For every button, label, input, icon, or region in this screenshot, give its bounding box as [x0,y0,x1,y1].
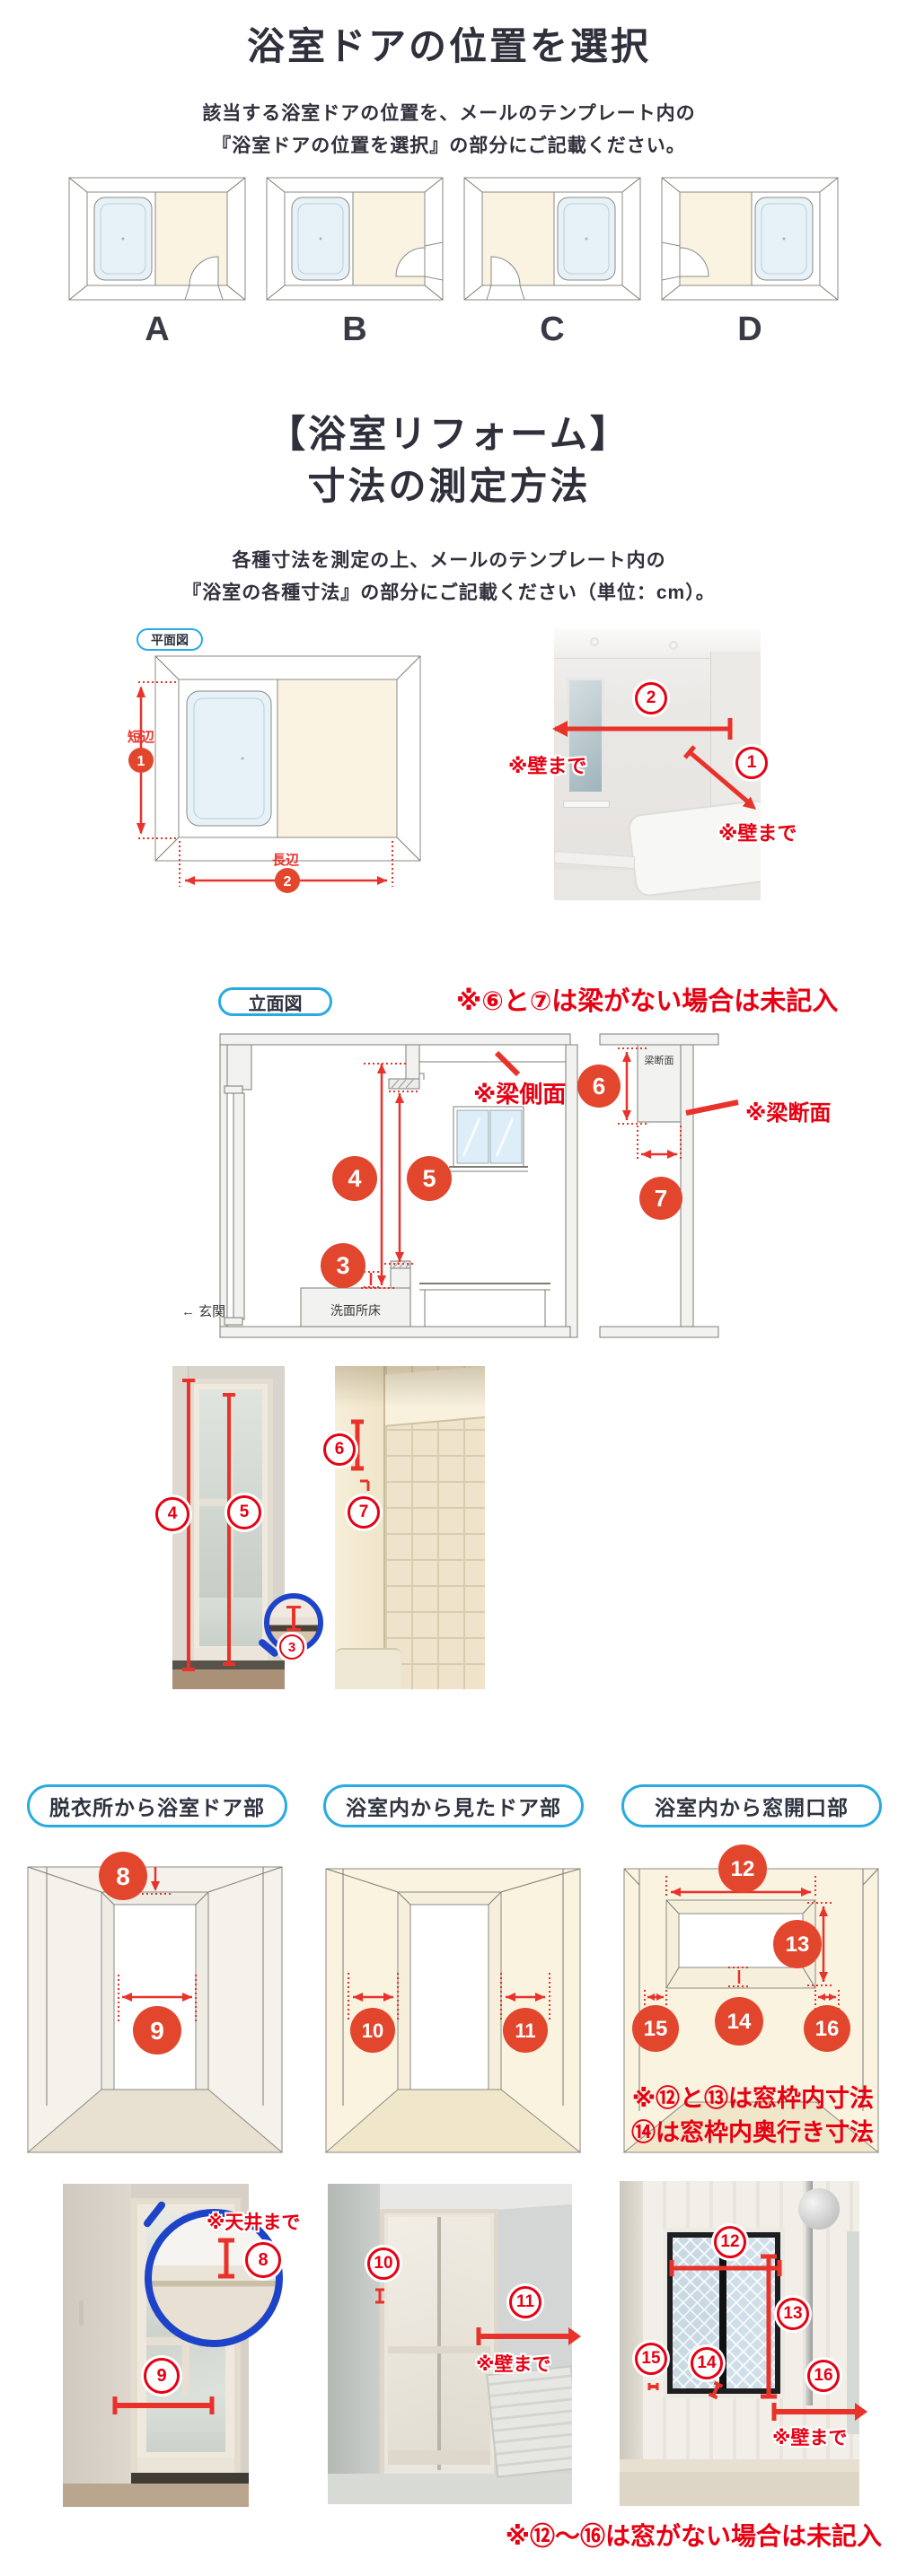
dimension-5: 5 [384,1091,452,1264]
bathtub [94,197,152,280]
photo-marker-9: 9 [144,2358,180,2394]
beam-section-note: ※梁断面 [745,1100,831,1126]
dimension-mark-10 [373,2287,389,2305]
dimension-mark-15 [647,2380,661,2393]
wall-note-2: ※壁まで [718,818,797,846]
bathtub-cover [486,2365,572,2477]
beam-side-label: ※梁側面 [473,1081,566,1108]
marker-3: 3 [336,1252,349,1279]
marker-14: 14 [727,2010,752,2034]
marker-16: 16 [815,2017,840,2041]
step-dimension [292,1606,295,1631]
ceiling-light [669,641,678,650]
step-dimension-cap [286,1606,301,1608]
short-side-label: 短辺 [128,729,155,745]
threshold [131,2473,249,2484]
photo-marker-10: 10 [367,2247,400,2280]
photo-marker-14-number: 14 [697,2353,716,2373]
marker-5: 5 [422,1165,436,1192]
no-window-note: ※⑫〜⑯は窓がない場合は未記入 [506,2517,882,2553]
page-title: 浴室ドアの位置を選択 [0,16,898,71]
photo-marker-3: 3 [279,1634,304,1660]
photo-marker-12: 12 [714,2226,746,2258]
section2-subtitle-line2: 『浴室の各種寸法』の部分にご記載ください（単位：cm）。 [0,578,898,605]
bathtub [292,197,349,280]
option-d-label: D [660,311,840,349]
window-dimension-note-2: ⑭は窓枠内奥行き寸法 [631,2113,874,2148]
door-hinge-line [437,2217,441,2470]
photo-marker-15-number: 15 [641,2349,660,2369]
ceiling-shadow [335,1366,485,1407]
photo-marker-4-number: 4 [168,1504,178,1524]
photo-marker-8-number: 8 [258,2250,268,2271]
dimension-3: 3 [321,1243,379,1288]
beam-section-small-label: 梁断面 [645,1054,674,1066]
floorplan-badge: 平面図 [136,628,203,651]
photo-marker-9-number: 9 [156,2366,166,2387]
ceiling-note: ※天井まで [207,2208,300,2235]
floor [63,2484,249,2507]
plan-c-diagram [462,176,642,302]
subtitle-line1: 該当する浴室ドアの位置を、メールのテンプレート内の [0,99,898,126]
tub-edge [620,2459,859,2472]
inside-door-diagram: 10 11 [325,1867,581,2154]
marker-10: 10 [362,2020,383,2042]
bathtub [558,197,615,280]
left-wall [328,2184,380,2504]
shelf [563,801,610,808]
corner-shadow [620,2181,643,2506]
door-position-option-b: B [265,176,445,349]
elevation-figure: 洗面所床 ← 玄関 ※梁側面 4 5 3 [180,1023,862,1346]
marker-6: 6 [593,1073,605,1100]
dimension-line-13 [759,2251,779,2402]
wall-note-1: ※壁まで [508,750,586,779]
counter [554,851,635,869]
dimension-line-9 [110,2395,217,2416]
tiled-bathroom-photo [335,1366,485,1689]
photo-marker-7-number: 7 [359,1503,369,1522]
beam-missing-note: ※⑥と⑦は梁がない場合は未記入 [456,980,838,1018]
photo-marker-16: 16 [807,2360,840,2392]
door-position-option-c: C [462,176,642,349]
section2-subtitle-line1: 各種寸法を測定の上、メールのテンプレート内の [0,546,898,573]
page: 浴室ドアの位置を選択 該当する浴室ドアの位置を、メールのテンプレート内の 『浴室… [0,0,898,2576]
marker-13: 13 [786,1932,810,1957]
photo-marker-2-number: 2 [647,688,656,708]
option-a-label: A [67,311,247,349]
photo-marker-13: 13 [777,2298,809,2330]
marker-15: 15 [644,2017,668,2041]
door-handle [79,2300,84,2326]
photo-marker-14: 14 [691,2347,723,2379]
option-b-label: B [265,311,445,349]
window-dimension-note-1: ※⑫と⑬は窓枠内寸法 [632,2079,874,2114]
photo-marker-15: 15 [635,2343,667,2375]
washroom-floor-label: 洗面所床 [330,1303,381,1318]
dimension-arrow-11 [473,2325,583,2348]
dimension-arrow-2 [548,716,745,743]
photo-marker-12-number: 12 [720,2232,739,2252]
shower-head [798,2188,840,2230]
section2-title-line2: 寸法の測定方法 [0,456,898,511]
floor [620,2472,859,2506]
plan-d-diagram [660,176,840,302]
door-bottom-rail [388,2450,490,2465]
marker-12: 12 [731,1857,755,1881]
dimension-mark-7 [357,1477,372,1494]
marker-7: 7 [655,1185,667,1212]
photo-marker-13-number: 13 [783,2304,802,2324]
plan-a-diagram [67,176,247,302]
photo-marker-8: 8 [245,2242,281,2278]
step-dimension-cap [286,1628,301,1631]
marker-2: 2 [284,874,292,889]
beam-section-detail: 梁断面 6 7 ※梁断面 [577,1034,831,1337]
marker-9: 9 [150,2017,164,2045]
marker-4: 4 [348,1165,361,1192]
plan-b-diagram [265,176,445,302]
photo-marker-3-number: 3 [288,1640,295,1655]
wall-note-4: ※壁まで [772,2423,847,2450]
beam-side-callout: ※梁側面 [473,1053,566,1108]
elevation-badge: 立面図 [218,987,332,1016]
photo-marker-4: 4 [155,1497,189,1531]
door-position-option-d: D [660,176,840,349]
bathtub [755,197,813,280]
section-header-window: 浴室内から窓開口部 [621,1784,882,1827]
floor [328,2474,572,2504]
ceiling-dimension [216,2237,237,2282]
dimension-line-5 [220,1389,238,1669]
subtitle-line2: 『浴室ドアの位置を選択』の部分にご記載ください。 [0,131,898,158]
photo-marker-2: 2 [635,682,667,714]
marker-1: 1 [137,754,145,769]
marker-8: 8 [116,1862,130,1890]
window [449,1107,528,1171]
wall-note-3: ※壁まで [476,2350,550,2377]
long-side-label: 長辺 [272,852,300,868]
photo-marker-11: 11 [509,2286,541,2318]
entrance-label: ← 玄関 [181,1304,225,1319]
marker-11: 11 [515,2020,535,2042]
wall [63,2184,131,2507]
photo-marker-5-number: 5 [240,1503,250,1522]
ceiling-light [590,637,599,646]
bathtub-edge [335,1648,401,1689]
photo-marker-7: 7 [348,1496,380,1529]
photo-marker-6-number: 6 [335,1440,345,1459]
section-header-dressing-room: 脱衣所から浴室ドア部 [27,1784,287,1827]
dimension-arrow-1 [682,745,772,817]
section2-title-line1: 【浴室リフォーム】 [0,404,898,459]
dimension-arrow-16 [769,2400,869,2423]
photo-marker-16-number: 16 [814,2366,832,2386]
bathtub [187,691,271,826]
floorplan-figure: 短辺 1 長辺 2 [126,652,440,896]
dressing-room-door-diagram: 8 9 [27,1865,283,2154]
photo-marker-6: 6 [323,1433,356,1466]
option-c-label: C [462,311,642,349]
photo-marker-10-number: 10 [374,2254,392,2274]
door-position-option-a: A [67,176,247,349]
photo-marker-11-number: 11 [516,2292,534,2312]
photo-marker-5: 5 [227,1495,261,1529]
section-header-inside-door: 浴室内から見たドア部 [323,1784,584,1827]
